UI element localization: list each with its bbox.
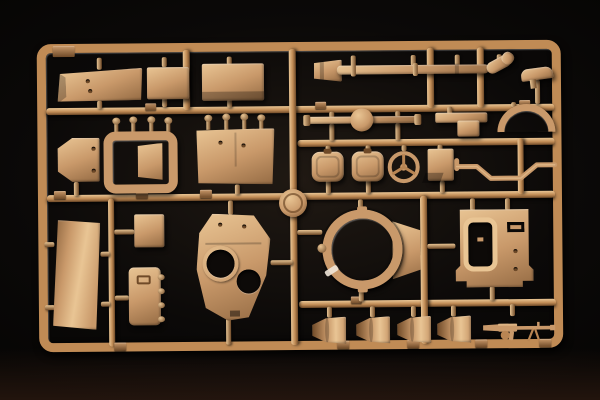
sprue-gate	[366, 179, 371, 193]
sprue-gate	[114, 229, 134, 234]
round-hatch-left	[312, 152, 344, 182]
sprue-gate	[297, 230, 322, 235]
sprue-gate	[440, 181, 445, 193]
sprue-gate	[451, 306, 456, 317]
steering-wheel	[386, 149, 422, 185]
sprue-gate	[235, 185, 240, 195]
floor-panel	[196, 128, 274, 185]
sprue-gate	[97, 58, 102, 70]
sprue-gate	[162, 98, 167, 107]
axle-with-differential	[307, 116, 417, 124]
mount-bracket	[457, 120, 479, 136]
photo-model-kit-sprue	[0, 0, 600, 400]
sprue-gate	[45, 305, 55, 310]
sprue-logo-medallion	[279, 189, 307, 217]
exhaust-pipe	[337, 64, 489, 74]
part-number-tab	[145, 103, 156, 110]
small-bin	[428, 149, 454, 181]
rear-panel-frame	[455, 209, 534, 288]
turret-ring	[322, 209, 421, 292]
sprue-gate	[505, 198, 510, 210]
stowage-box-small	[147, 67, 189, 99]
part-number-tab	[54, 191, 66, 199]
stowage-panel	[202, 63, 264, 101]
sprue-gate	[327, 307, 332, 318]
sprue-gate	[411, 306, 416, 317]
sprue-gate	[100, 252, 109, 257]
sprue-gate	[227, 100, 232, 108]
sprue-gate	[271, 260, 293, 265]
sprue-runner	[427, 48, 435, 108]
sprue-gate	[115, 295, 129, 300]
part-number-tab	[315, 102, 326, 109]
sprue-gate	[395, 123, 400, 140]
part-number-tab	[200, 190, 212, 198]
sprue-gate	[44, 242, 54, 247]
sprue-gate	[206, 121, 210, 130]
sprue-gate	[224, 120, 228, 130]
sprue-letter-tab	[53, 46, 75, 57]
part-number-tab	[114, 343, 126, 351]
sprue-runner	[108, 199, 115, 347]
sprue-gate	[470, 198, 475, 210]
sprue-gate	[162, 57, 167, 67]
sprue-runner	[477, 47, 485, 107]
sprue-gate	[97, 101, 102, 109]
machine-gun	[479, 314, 557, 345]
sprue-gate	[101, 302, 110, 307]
seat-frame	[103, 131, 178, 194]
round-hatch-right	[352, 151, 384, 181]
sprue-gate	[74, 182, 79, 196]
sprue-gate	[242, 119, 246, 129]
sprue-gate	[490, 286, 495, 300]
small-panel	[134, 214, 164, 247]
sprue-gate	[228, 201, 233, 215]
angled-plate	[57, 138, 99, 182]
sprue	[0, 0, 600, 400]
hinged-hatch-door	[129, 267, 162, 325]
hull-side-plate	[52, 220, 101, 330]
sprue-gate	[427, 244, 455, 249]
sprue-gate	[370, 306, 375, 317]
sprue-gate	[259, 120, 263, 129]
stepped-tow-rod	[453, 152, 559, 189]
sprue-gate	[329, 124, 334, 141]
sprue-gate	[326, 180, 331, 194]
sprue-gate	[226, 319, 231, 345]
